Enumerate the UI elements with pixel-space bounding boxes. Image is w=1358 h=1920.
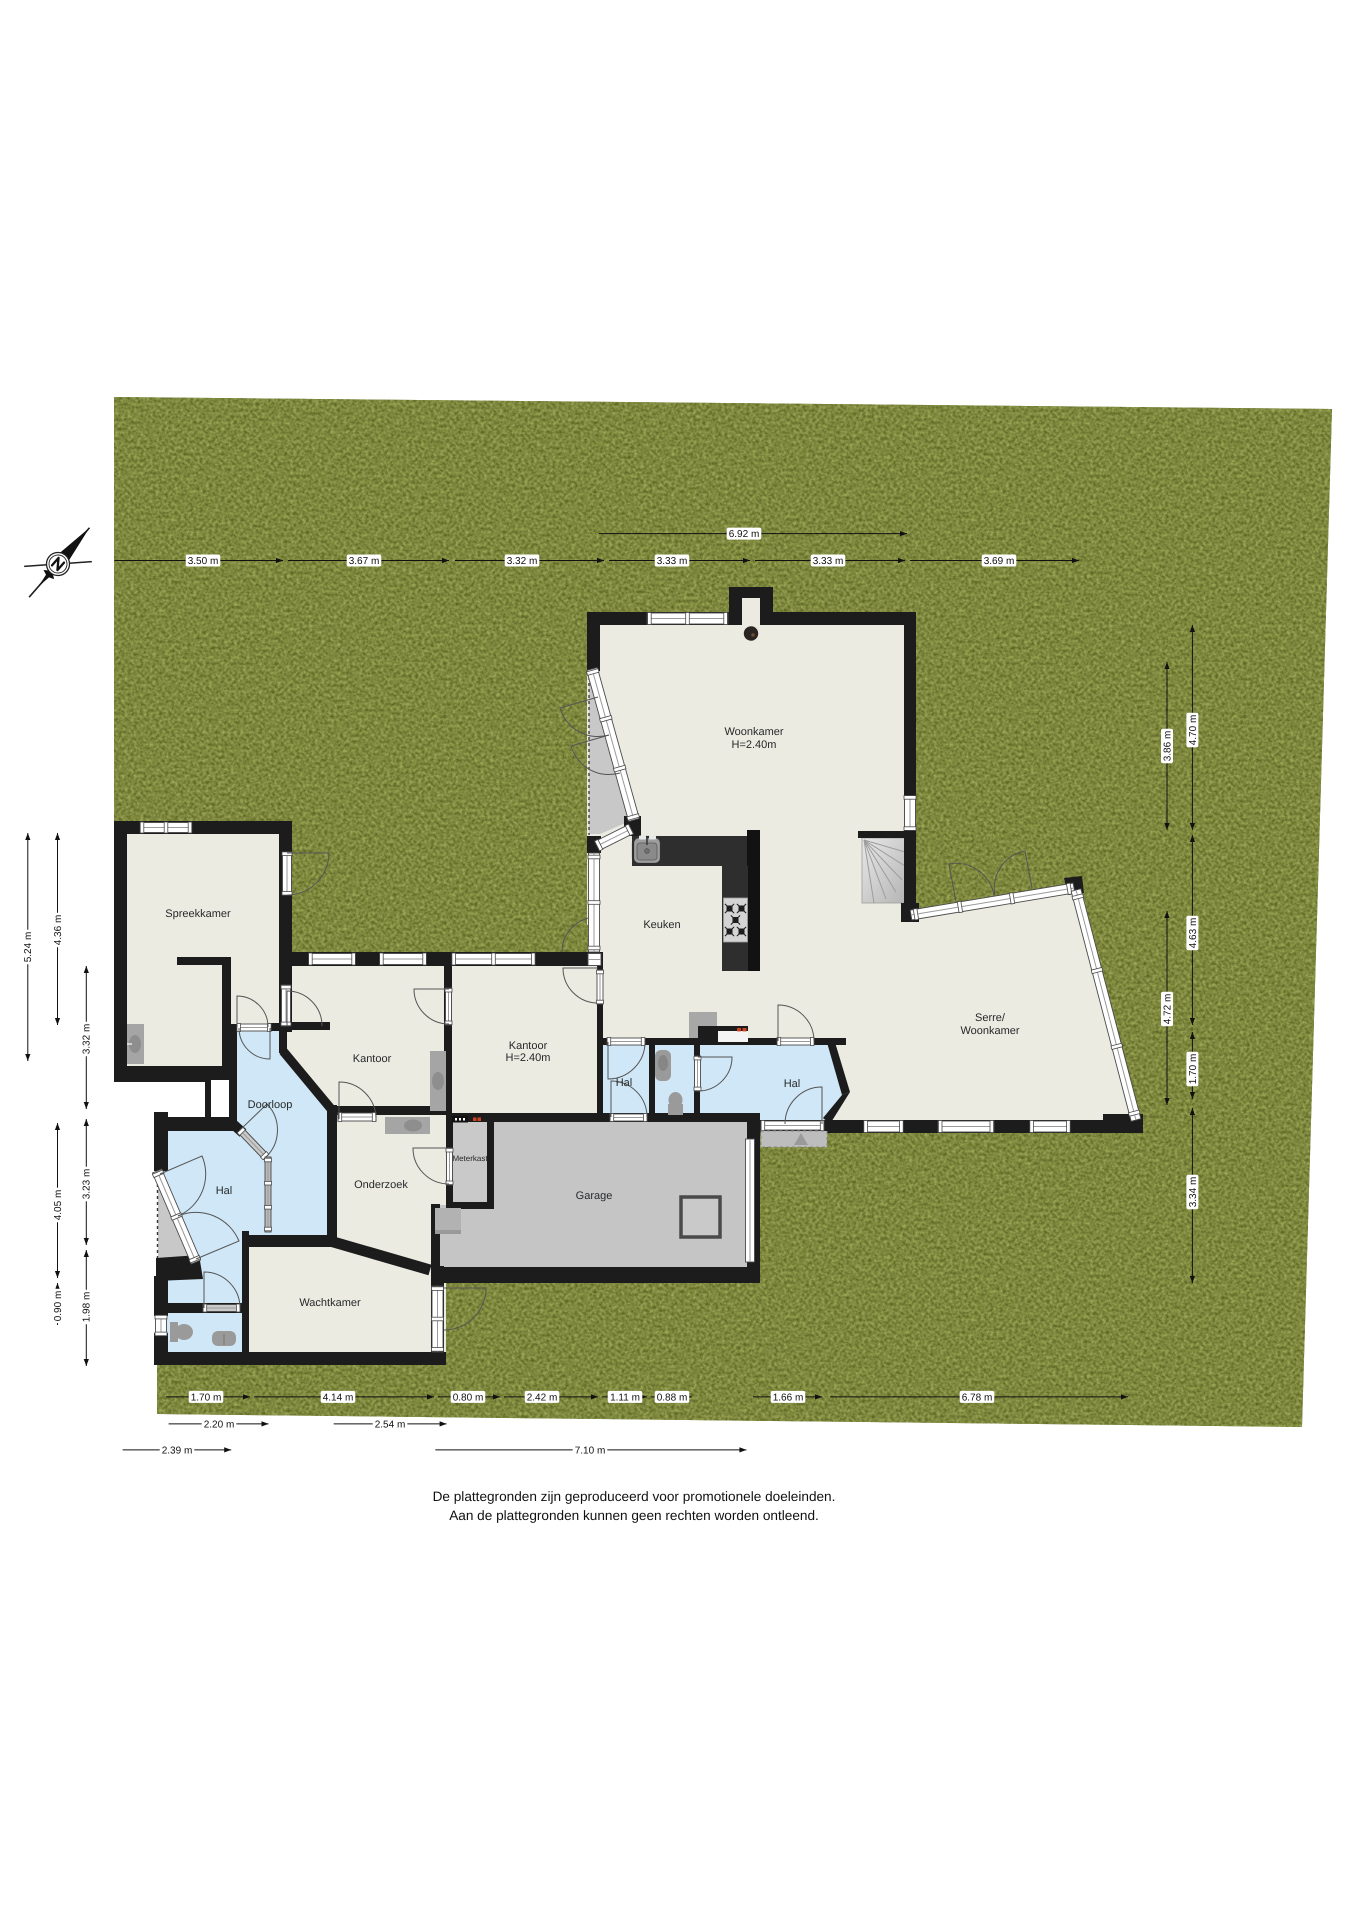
svg-text:3.50 m: 3.50 m <box>188 556 219 567</box>
svg-text:2.42 m: 2.42 m <box>527 1392 558 1403</box>
svg-text:Garage: Garage <box>576 1190 613 1202</box>
svg-text:Doorloop: Doorloop <box>248 1099 293 1111</box>
svg-text:3.32 m: 3.32 m <box>82 1024 93 1055</box>
svg-text:4.14 m: 4.14 m <box>323 1392 354 1403</box>
svg-text:Woonkamer: Woonkamer <box>724 726 783 738</box>
svg-text:Kantoor: Kantoor <box>509 1040 548 1052</box>
svg-text:3.86 m: 3.86 m <box>1162 731 1173 762</box>
svg-text:4.72 m: 4.72 m <box>1162 994 1173 1025</box>
svg-text:3.33 m: 3.33 m <box>657 556 688 567</box>
svg-text:Keuken: Keuken <box>643 919 680 931</box>
svg-text:Onderzoek: Onderzoek <box>354 1179 408 1191</box>
svg-text:3.32 m: 3.32 m <box>507 556 538 567</box>
svg-text:Hal: Hal <box>784 1078 801 1090</box>
svg-text:Spreekkamer: Spreekkamer <box>165 908 231 920</box>
svg-text:4.63 m: 4.63 m <box>1188 918 1199 949</box>
svg-text:6.92 m: 6.92 m <box>729 529 760 540</box>
svg-text:H=2.40m: H=2.40m <box>506 1052 551 1064</box>
svg-text:5.24 m: 5.24 m <box>23 932 34 963</box>
svg-text:1.70 m: 1.70 m <box>191 1392 222 1403</box>
svg-text:1.66 m: 1.66 m <box>773 1392 804 1403</box>
svg-text:Woonkamer: Woonkamer <box>960 1025 1019 1037</box>
svg-text:0.90 m: 0.90 m <box>53 1291 64 1322</box>
svg-text:7.10 m: 7.10 m <box>575 1445 606 1456</box>
svg-text:Hal: Hal <box>216 1185 233 1197</box>
svg-text:4.36 m: 4.36 m <box>53 915 64 946</box>
svg-text:1.11 m: 1.11 m <box>610 1392 640 1403</box>
svg-text:2.20 m: 2.20 m <box>204 1419 235 1430</box>
svg-text:3.34 m: 3.34 m <box>1188 1177 1199 1208</box>
svg-text:1.70 m: 1.70 m <box>1188 1054 1199 1085</box>
svg-text:Kantoor: Kantoor <box>353 1053 392 1065</box>
svg-text:3.33 m: 3.33 m <box>813 556 844 567</box>
svg-text:4.70 m: 4.70 m <box>1188 715 1199 746</box>
svg-text:0.80 m: 0.80 m <box>453 1392 484 1403</box>
svg-text:6.78 m: 6.78 m <box>962 1392 993 1403</box>
svg-text:0.88 m: 0.88 m <box>657 1392 688 1403</box>
svg-text:Aan de plattegronden kunnen ge: Aan de plattegronden kunnen geen rechten… <box>449 1508 819 1523</box>
svg-text:De plattegronden zijn geproduc: De plattegronden zijn geproduceerd voor … <box>433 1489 836 1504</box>
svg-text:3.69 m: 3.69 m <box>984 556 1015 567</box>
svg-text:2.54 m: 2.54 m <box>375 1419 406 1430</box>
svg-text:Serre/: Serre/ <box>975 1012 1006 1024</box>
svg-text:Wachtkamer: Wachtkamer <box>299 1297 361 1309</box>
svg-text:Meterkast: Meterkast <box>452 1154 488 1163</box>
svg-text:H=2.40m: H=2.40m <box>732 739 777 751</box>
svg-text:1.98 m: 1.98 m <box>82 1292 93 1323</box>
svg-text:3.23 m: 3.23 m <box>82 1169 93 1200</box>
svg-text:Hal: Hal <box>616 1077 633 1089</box>
svg-text:2.39 m: 2.39 m <box>162 1445 193 1456</box>
svg-text:4.05 m: 4.05 m <box>53 1190 64 1221</box>
svg-text:3.67 m: 3.67 m <box>349 556 380 567</box>
